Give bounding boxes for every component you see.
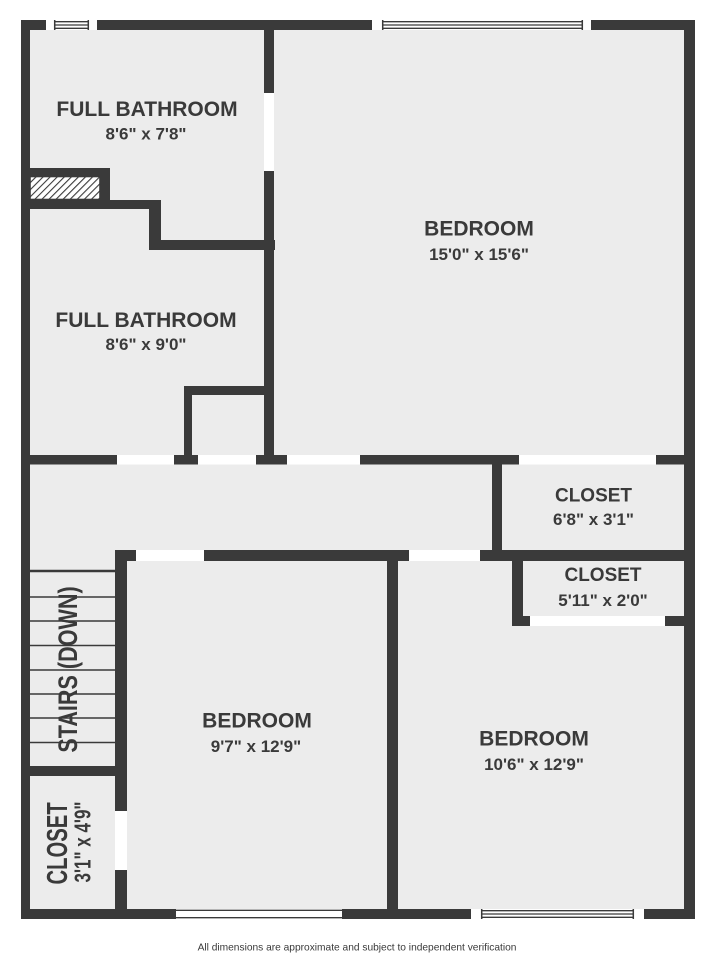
svg-text:BEDROOM: BEDROOM	[202, 710, 312, 733]
svg-text:5'11" x 2'0": 5'11" x 2'0"	[558, 591, 647, 610]
svg-text:STAIRS (DOWN): STAIRS (DOWN)	[54, 586, 84, 752]
svg-text:15'0" x 15'6": 15'0" x 15'6"	[429, 245, 529, 264]
svg-text:3'1" x 4'9": 3'1" x 4'9"	[71, 802, 96, 883]
svg-text:CLOSET: CLOSET	[555, 486, 632, 507]
svg-text:BEDROOM: BEDROOM	[479, 728, 589, 751]
svg-text:BEDROOM: BEDROOM	[424, 218, 534, 241]
svg-text:6'8" x 3'1": 6'8" x 3'1"	[553, 510, 634, 529]
svg-text:CLOSET: CLOSET	[564, 565, 641, 586]
svg-text:FULL BATHROOM: FULL BATHROOM	[55, 309, 236, 332]
svg-text:CLOSET: CLOSET	[42, 802, 74, 885]
svg-text:8'6" x 9'0": 8'6" x 9'0"	[106, 335, 187, 354]
svg-text:All dimensions are approximate: All dimensions are approximate and subje…	[198, 943, 517, 954]
svg-text:10'6" x 12'9": 10'6" x 12'9"	[484, 755, 584, 774]
svg-text:FULL BATHROOM: FULL BATHROOM	[56, 98, 237, 121]
svg-text:8'6" x 7'8": 8'6" x 7'8"	[106, 125, 187, 144]
svg-text:9'7" x 12'9": 9'7" x 12'9"	[211, 737, 301, 756]
